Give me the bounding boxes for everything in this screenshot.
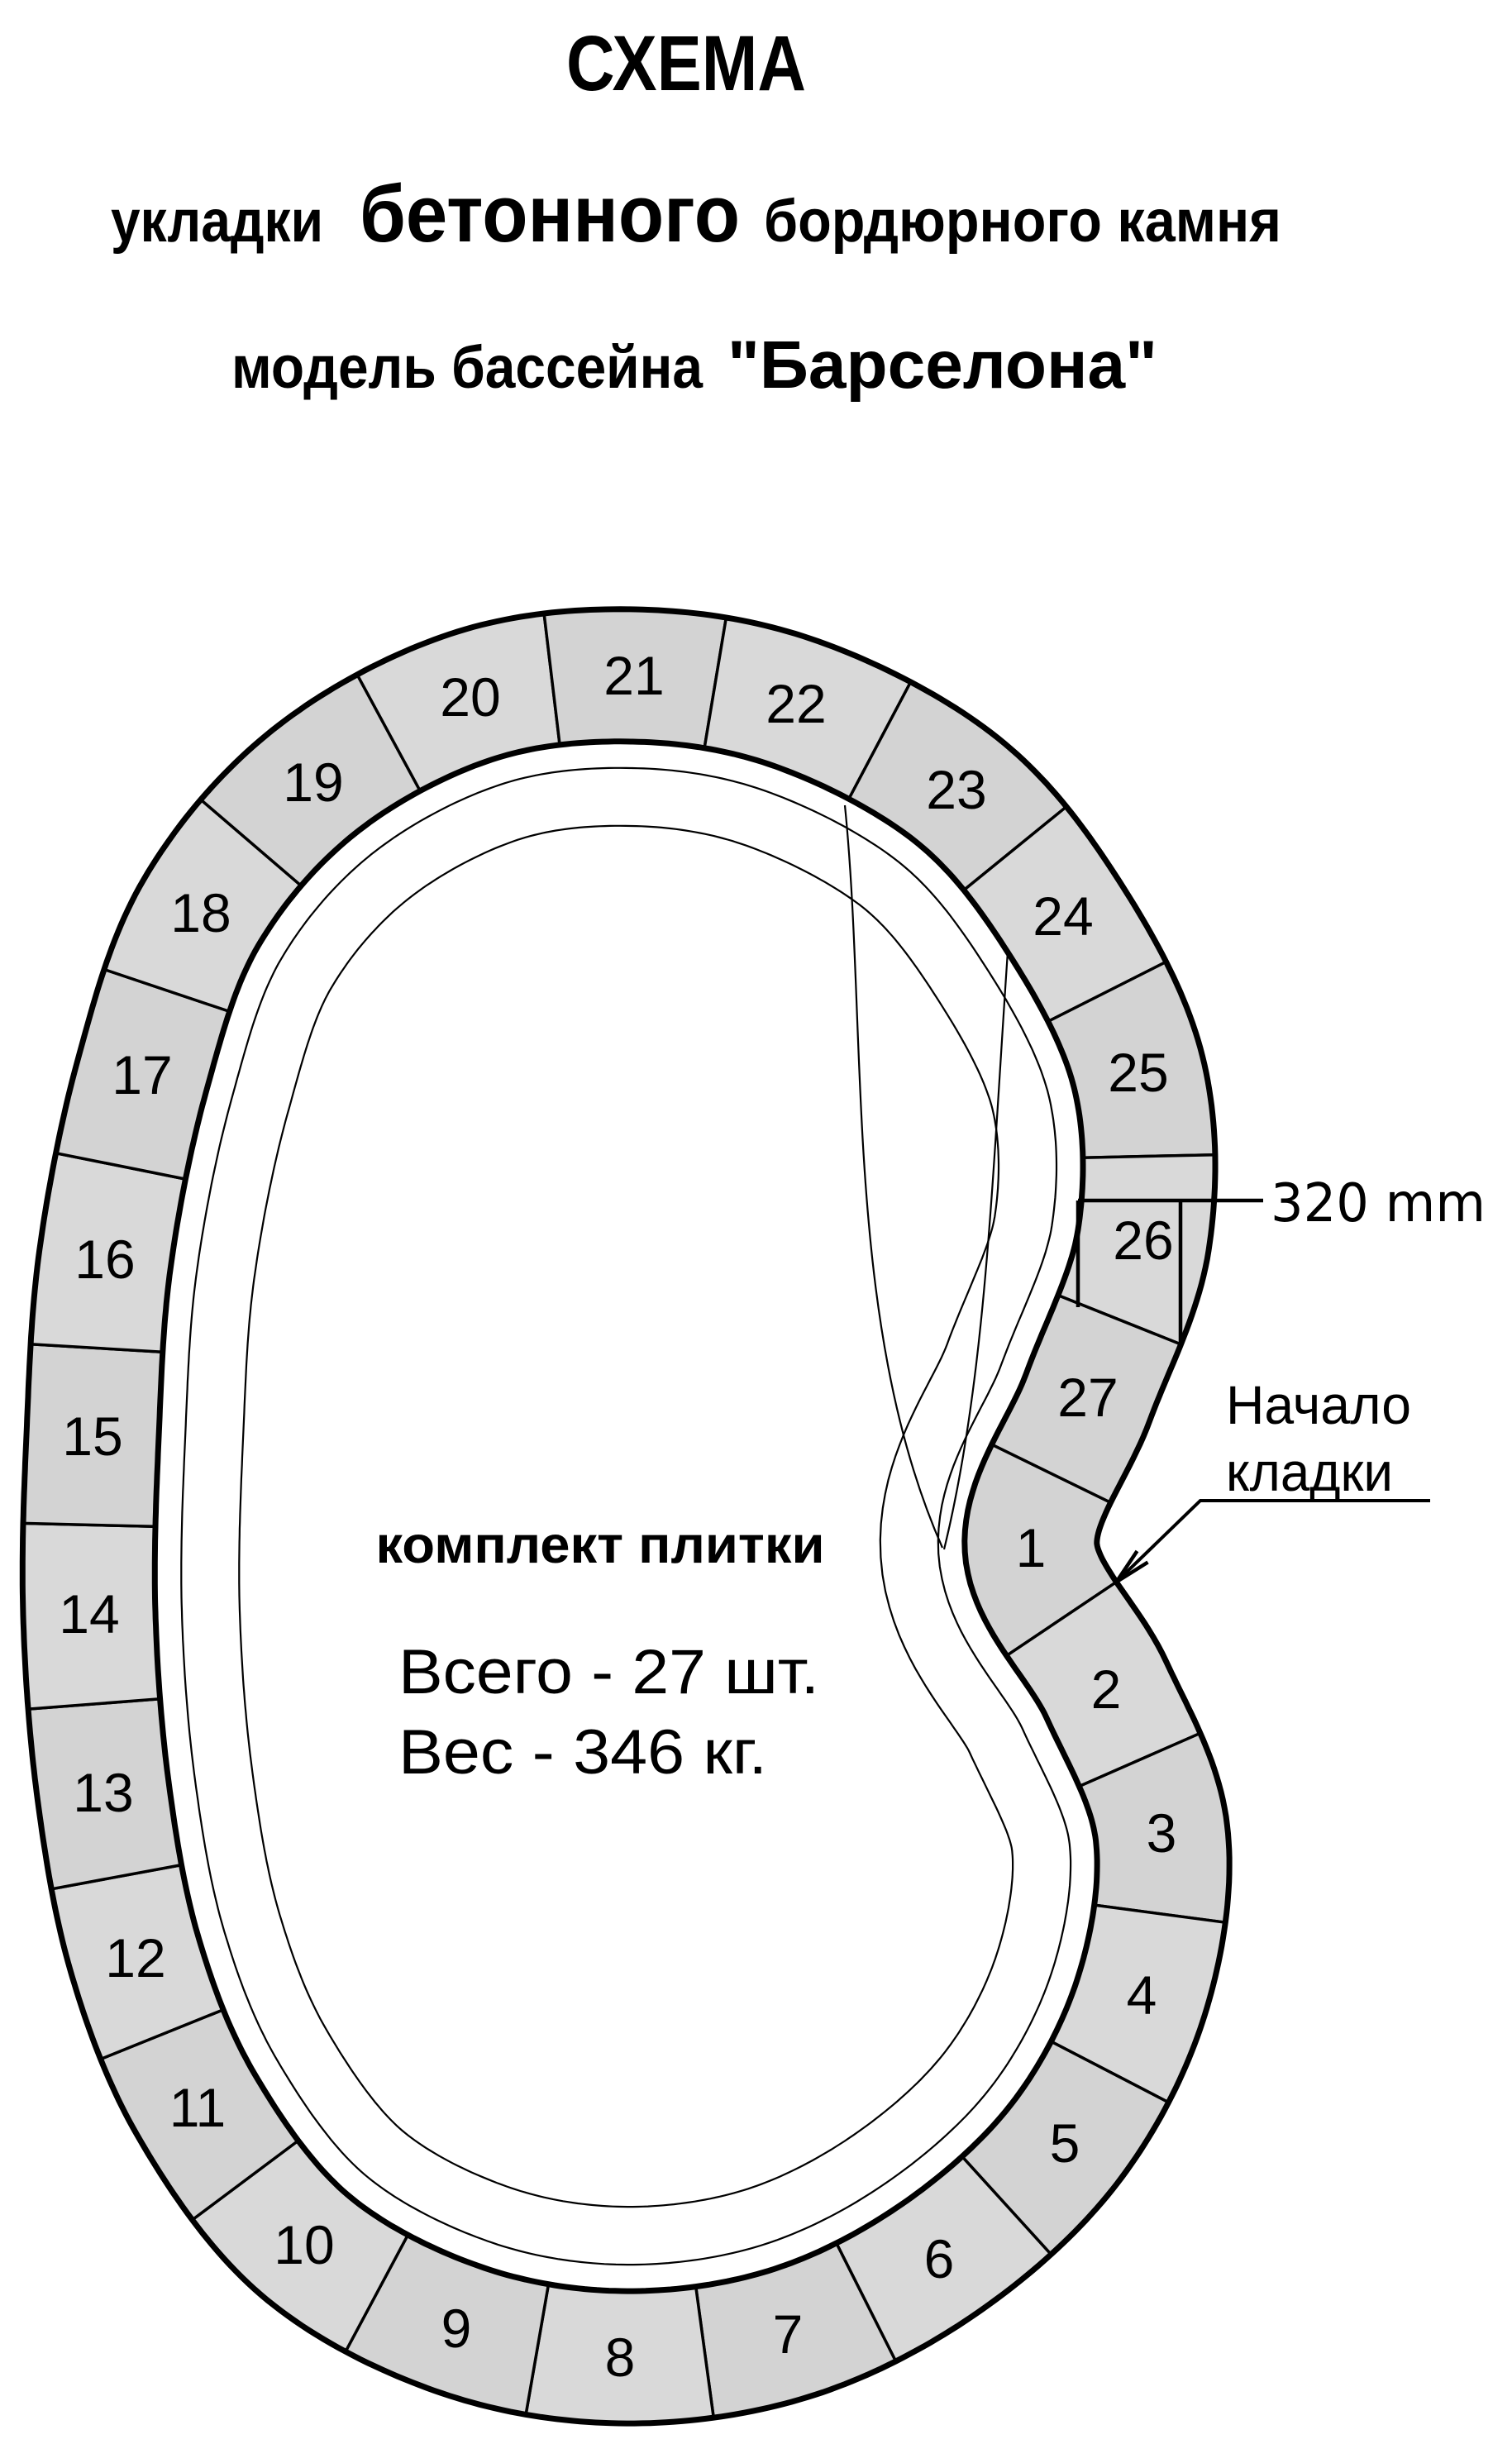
segment-number-24: 24 [1033,885,1093,947]
segment-number-26: 26 [1113,1210,1173,1271]
segment-number-14: 14 [59,1583,119,1644]
segment-number-4: 4 [1127,1964,1157,2026]
dimension-label: 320 mm [1271,1173,1486,1234]
model-line-prefix: модель бассейна [231,335,704,401]
segment-number-17: 17 [112,1044,172,1105]
kit-total-line: Всего - 27 шт. [398,1637,819,1707]
segment-number-9: 9 [441,2298,472,2359]
segment-number-8: 8 [605,2327,636,2388]
schema-page: 1234567891011121314151617181920212223242… [0,0,1512,2444]
segment-number-19: 19 [283,752,343,813]
page-title: СХЕМА [566,20,806,107]
segment-number-27: 27 [1057,1367,1118,1428]
kit-heading: комплект плитки [376,1516,825,1574]
segment-number-7: 7 [773,2303,804,2365]
segment-number-13: 13 [73,1762,133,1823]
segment-number-20: 20 [440,666,500,728]
segment-number-6: 6 [924,2228,955,2289]
model-line-name: "Барселона" [727,327,1157,403]
pool-shell-curve-1 [845,805,942,1548]
start-note-line-1: Начало [1226,1374,1411,1435]
segment-number-11: 11 [169,2077,227,2138]
segment-number-10: 10 [274,2214,334,2275]
subtitle-word-2: бетонного [360,169,740,259]
segment-number-25: 25 [1108,1042,1168,1103]
segment-number-1: 1 [1016,1517,1047,1578]
start-leader-line [1116,1501,1430,1582]
segment-number-2: 2 [1091,1659,1122,1720]
segment-number-21: 21 [603,645,664,706]
subtitle-word-1: укладки [111,189,323,255]
start-note-line-2: кладки [1226,1441,1393,1502]
segment-number-16: 16 [74,1229,135,1290]
segment-number-22: 22 [766,673,826,734]
segment-number-3: 3 [1147,1802,1177,1864]
segment-number-12: 12 [105,1927,165,1988]
kit-weight-line: Вес - 346 кг. [398,1717,767,1788]
subtitle-word-3: бордюрного камня [764,189,1281,255]
segment-number-18: 18 [170,882,231,943]
segment-number-15: 15 [62,1406,122,1467]
segment-number-23: 23 [926,759,986,820]
pool-curb-laying-diagram: 1234567891011121314151617181920212223242… [0,0,1512,2444]
segment-number-5: 5 [1050,2112,1080,2174]
